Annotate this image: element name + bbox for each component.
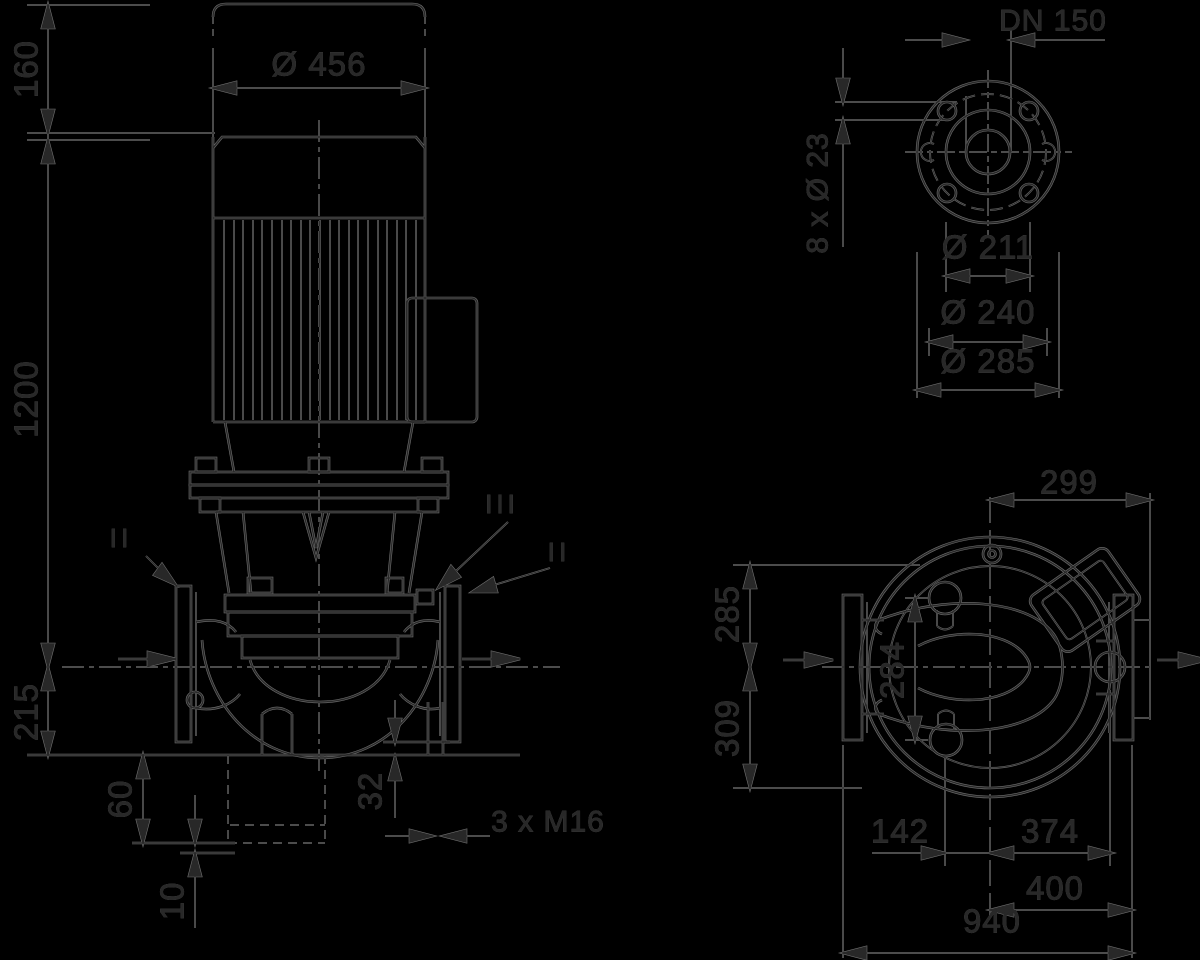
pump-dimensional-drawing: Ø 456 160 1200 215 60 10 32 3 x M16 II I… [0, 0, 1200, 960]
technical-drawing-page: Ø 456 160 1200 215 60 10 32 3 x M16 II I… [0, 0, 1200, 960]
